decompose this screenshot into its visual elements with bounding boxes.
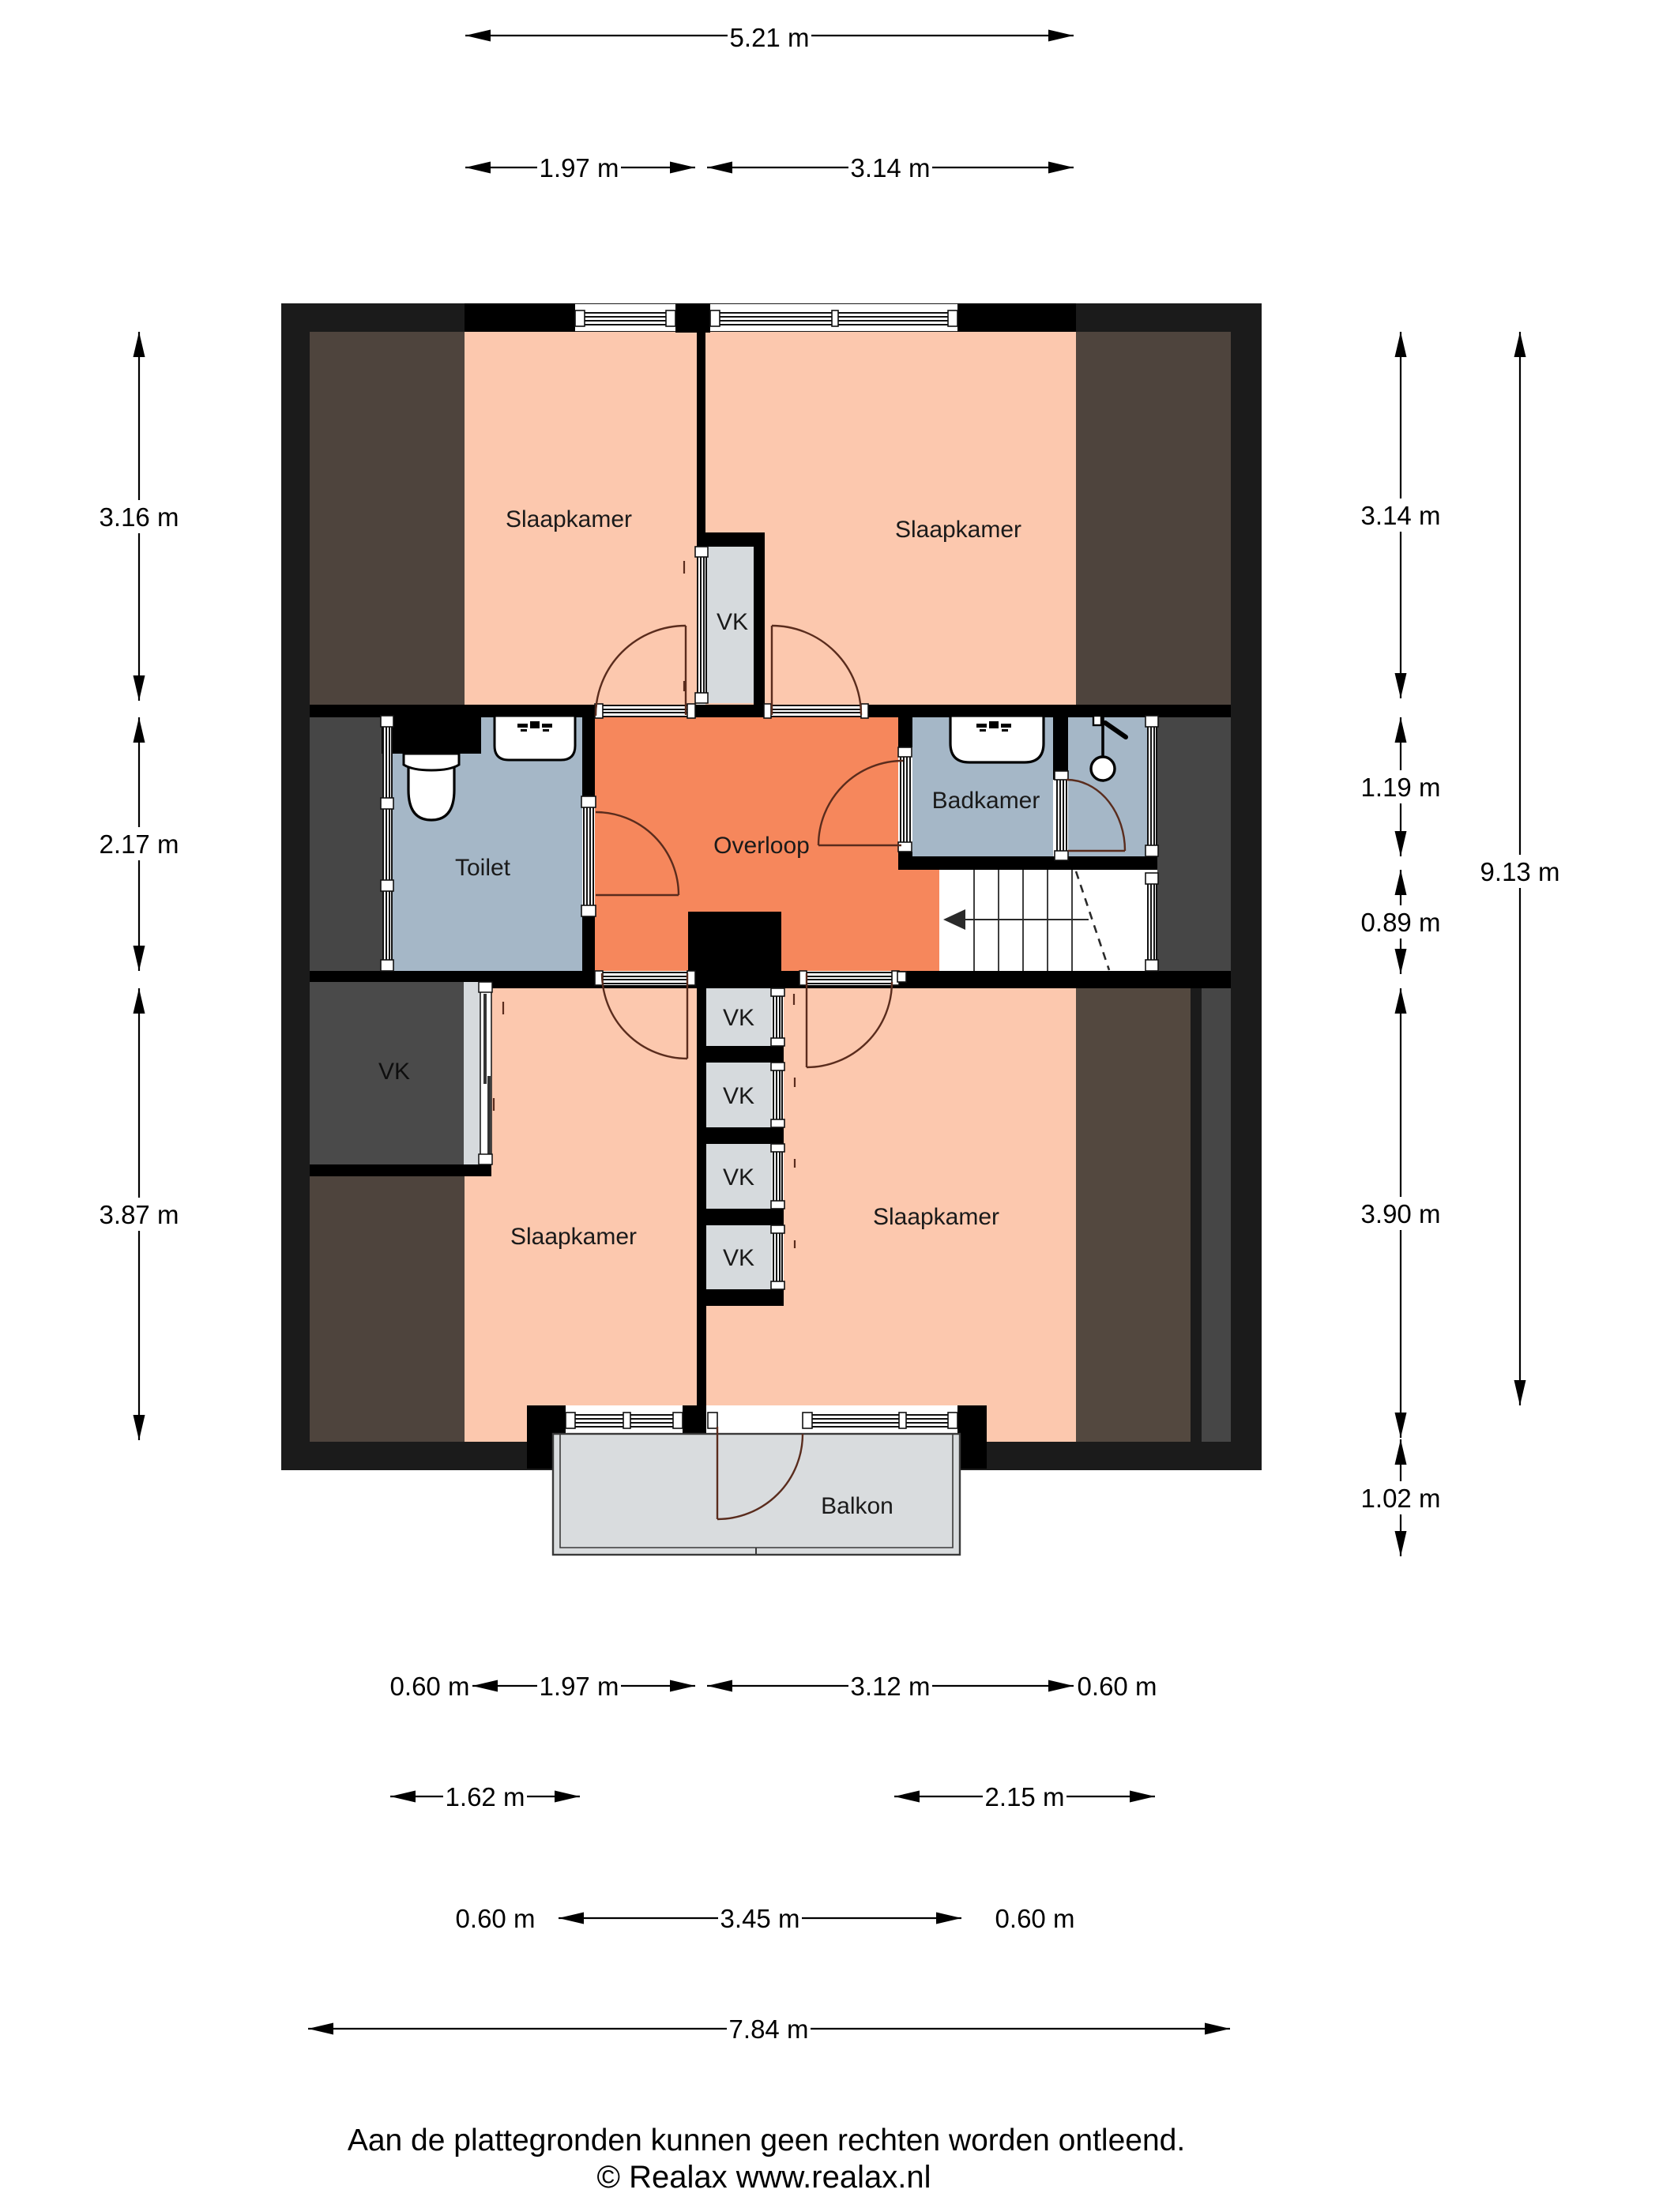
svg-text:Slaapkamer: Slaapkamer (506, 506, 632, 532)
svg-text:3.14 m: 3.14 m (851, 153, 931, 182)
svg-text:3.16 m: 3.16 m (100, 502, 179, 532)
svg-text:0.89 m: 0.89 m (1361, 908, 1441, 937)
svg-text:VK: VK (723, 1245, 754, 1271)
svg-text:3.14 m: 3.14 m (1361, 501, 1441, 530)
svg-text:Slaapkamer: Slaapkamer (895, 517, 1021, 543)
svg-text:9.13 m: 9.13 m (1480, 857, 1560, 886)
svg-text:Slaapkamer: Slaapkamer (510, 1224, 637, 1250)
svg-text:2.17 m: 2.17 m (100, 829, 179, 859)
svg-text:VK: VK (717, 609, 748, 635)
svg-text:0.60 m: 0.60 m (456, 1904, 536, 1933)
svg-text:1.62 m: 1.62 m (446, 1782, 525, 1811)
svg-text:0.60 m: 0.60 m (1078, 1672, 1157, 1701)
svg-text:VK: VK (723, 1005, 754, 1031)
svg-text:7.84 m: 7.84 m (729, 2014, 809, 2044)
svg-text:1.97 m: 1.97 m (540, 153, 619, 182)
svg-text:Slaapkamer: Slaapkamer (873, 1204, 999, 1230)
svg-text:3.12 m: 3.12 m (851, 1672, 931, 1701)
svg-text:2.15 m: 2.15 m (985, 1782, 1065, 1811)
svg-text:Aan de plattegronden kunnen ge: Aan de plattegronden kunnen geen rechten… (348, 2124, 1185, 2157)
svg-text:Toilet: Toilet (455, 855, 511, 881)
svg-text:1.97 m: 1.97 m (540, 1672, 619, 1701)
svg-text:VK: VK (723, 1164, 754, 1191)
svg-text:0.60 m: 0.60 m (995, 1904, 1075, 1933)
svg-text:VK: VK (378, 1059, 410, 1085)
svg-text:3.87 m: 3.87 m (100, 1200, 179, 1229)
svg-text:0.60 m: 0.60 m (390, 1672, 470, 1701)
svg-text:Badkamer: Badkamer (932, 788, 1040, 814)
svg-text:1.02 m: 1.02 m (1361, 1484, 1441, 1513)
svg-text:5.21 m: 5.21 m (730, 23, 810, 52)
svg-text:1.19 m: 1.19 m (1361, 773, 1441, 802)
svg-text:© Realax www.realax.nl: © Realax www.realax.nl (597, 2160, 931, 2195)
svg-text:3.45 m: 3.45 m (720, 1904, 800, 1933)
svg-text:3.90 m: 3.90 m (1361, 1199, 1441, 1228)
svg-text:Overloop: Overloop (713, 833, 810, 859)
svg-text:Balkon: Balkon (821, 1493, 893, 1519)
svg-text:VK: VK (723, 1083, 754, 1109)
